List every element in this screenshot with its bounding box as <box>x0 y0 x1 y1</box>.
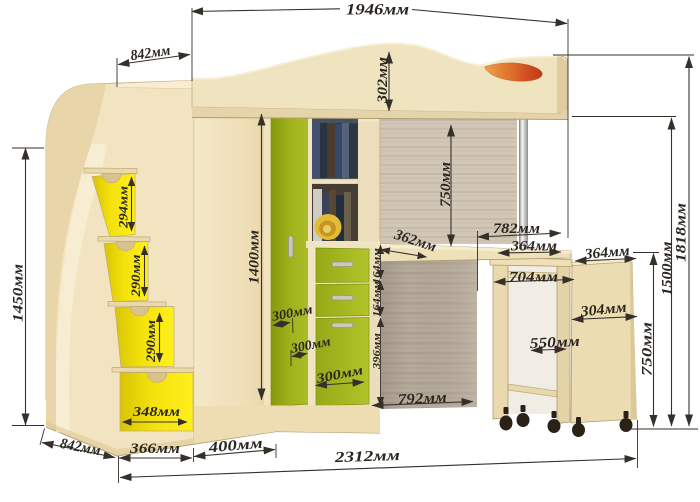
svg-text:164мм: 164мм <box>372 248 383 284</box>
svg-text:2312мм: 2312мм <box>333 448 400 466</box>
svg-text:294мм: 294мм <box>116 186 131 229</box>
svg-text:400мм: 400мм <box>207 436 263 457</box>
svg-text:842мм: 842мм <box>130 43 172 64</box>
svg-text:290мм: 290мм <box>128 254 143 297</box>
svg-text:750мм: 750мм <box>640 322 656 376</box>
svg-text:704мм: 704мм <box>509 270 558 286</box>
svg-text:366мм: 366мм <box>129 441 180 457</box>
svg-text:1946мм: 1946мм <box>346 2 409 19</box>
svg-text:290мм: 290мм <box>143 320 158 363</box>
svg-text:550мм: 550мм <box>529 334 580 353</box>
svg-text:1450мм: 1450мм <box>11 264 27 322</box>
svg-text:782мм: 782мм <box>493 221 540 237</box>
svg-text:1400мм: 1400мм <box>247 230 263 284</box>
svg-text:396мм: 396мм <box>372 333 383 370</box>
svg-text:364мм: 364мм <box>510 239 557 255</box>
svg-text:164мм: 164мм <box>372 281 383 317</box>
svg-text:1818мм: 1818мм <box>674 203 690 262</box>
svg-text:792мм: 792мм <box>397 390 447 409</box>
svg-text:348мм: 348мм <box>132 405 181 420</box>
svg-text:302мм: 302мм <box>375 57 391 104</box>
svg-text:750мм: 750мм <box>438 162 454 207</box>
